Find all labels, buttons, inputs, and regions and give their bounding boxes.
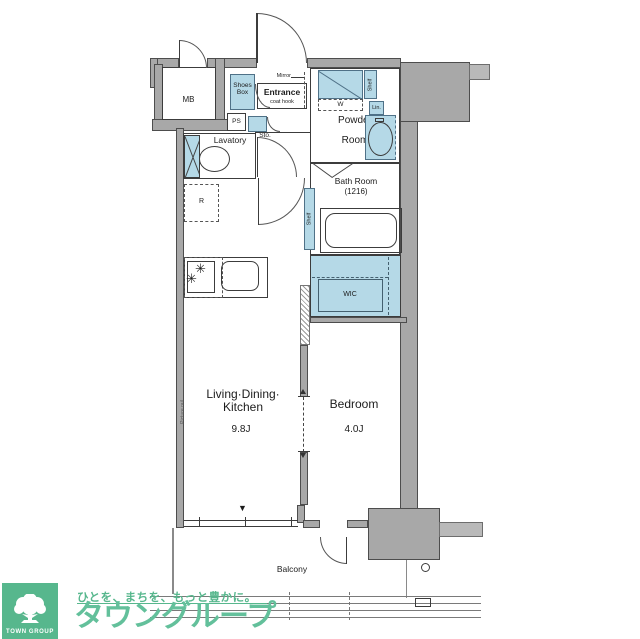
shelf-top-label: Shelf bbox=[368, 78, 374, 91]
washing-machine-pan bbox=[318, 70, 363, 99]
mirror-label: Mirror bbox=[267, 73, 291, 79]
balcony-fixture-box bbox=[415, 598, 431, 607]
mirror-on-wall bbox=[304, 72, 305, 108]
railing-tick bbox=[289, 592, 290, 620]
wic-label: WIC bbox=[312, 291, 388, 299]
lavatory-door-arc bbox=[257, 137, 297, 177]
bedroom-size: 4.0J bbox=[308, 424, 400, 436]
lavatory-label: Lavatory bbox=[200, 136, 260, 146]
window-marker-icon: ▼ bbox=[238, 503, 247, 513]
wall-bottom-right-extension bbox=[439, 522, 483, 537]
bedroom-label: Bedroom bbox=[308, 398, 400, 412]
logo-brand-jp: タウングループ bbox=[74, 600, 275, 633]
lavatory-door-leaf bbox=[257, 137, 258, 177]
ps-label: PS bbox=[227, 118, 246, 125]
hall-ldk-door-leaf bbox=[258, 178, 259, 225]
shoes-box-label-2: Box bbox=[230, 89, 255, 96]
shelf-mid: Shelf bbox=[304, 188, 315, 250]
wall-hatched-strip bbox=[300, 285, 310, 345]
sliding-door-track bbox=[303, 397, 304, 452]
picture-rail: Picture rail bbox=[177, 388, 189, 436]
shelf-mid-label: Shelf bbox=[307, 213, 313, 226]
mirror-leader-line bbox=[291, 77, 304, 78]
storage-box bbox=[248, 116, 267, 132]
balcony-drain bbox=[421, 563, 430, 572]
bedroom-balcony-door-leaf bbox=[346, 537, 347, 564]
ldk-size: 9.8J bbox=[184, 424, 298, 436]
hall-top-line bbox=[255, 132, 310, 133]
ldk-window-outer bbox=[184, 520, 298, 521]
picture-rail-label: Picture rail bbox=[180, 400, 186, 424]
shelf-top: Shelf bbox=[364, 70, 377, 99]
basin-faucet bbox=[375, 118, 384, 122]
wall-left-main bbox=[176, 128, 184, 528]
wic-hanger-pipe bbox=[388, 257, 389, 315]
pillar-drop-line bbox=[406, 560, 407, 598]
balcony-divider-left bbox=[172, 528, 174, 594]
sliding-door-end-tick-bottom bbox=[298, 451, 310, 452]
bathtub bbox=[325, 213, 397, 248]
bedroom-balcony-door-arc bbox=[320, 537, 347, 564]
kitchen-sink bbox=[221, 261, 259, 291]
balcony-label: Balcony bbox=[250, 565, 334, 575]
bath-room-label: Bath Room bbox=[312, 177, 400, 187]
wall-top-right-extension bbox=[469, 64, 490, 80]
wall-wic-bottom bbox=[310, 317, 407, 323]
bath-room-size: (1216) bbox=[312, 187, 400, 196]
pillar-bottom-right bbox=[368, 508, 440, 560]
wic-hanger-pipe bbox=[312, 277, 388, 278]
hall-ldk-door-arc bbox=[258, 178, 305, 225]
sliding-door-arrow-icon bbox=[300, 453, 306, 458]
town-group-text: TOWN GROUP bbox=[6, 629, 54, 635]
wall-bottom-seg-1 bbox=[303, 520, 320, 528]
wall-right-main bbox=[400, 121, 418, 509]
mb-label: MB bbox=[162, 95, 215, 104]
wall-bottom-seg-2 bbox=[347, 520, 368, 528]
toilet-tank bbox=[184, 135, 200, 178]
toilet-bowl bbox=[199, 146, 230, 172]
town-group-logo: TOWN GROUP bbox=[2, 583, 58, 639]
linen-label: Lin. bbox=[369, 105, 384, 111]
washing-machine-label: W bbox=[318, 101, 363, 108]
mb-room bbox=[162, 67, 216, 120]
stove-burner-icon: ✳ bbox=[186, 272, 197, 287]
sliding-door-arrow-icon bbox=[300, 389, 306, 394]
entrance-door-leaf bbox=[256, 13, 258, 63]
ldk-label-2: Kitchen bbox=[186, 401, 300, 415]
railing-tick bbox=[349, 592, 350, 620]
wall-top-right-segment bbox=[307, 58, 401, 68]
mb-door-arc bbox=[179, 40, 207, 68]
window-mullion bbox=[291, 517, 292, 527]
wash-basin-bowl bbox=[368, 122, 393, 156]
ldk-window-inner bbox=[184, 526, 298, 527]
wall-mb-bottom bbox=[152, 119, 228, 131]
storage-door-arc bbox=[267, 117, 280, 132]
pillar-top-right bbox=[400, 62, 470, 122]
window-mullion bbox=[199, 517, 200, 527]
town-group-tree-icon bbox=[11, 594, 49, 628]
window-mullion bbox=[245, 517, 246, 527]
mb-door-leaf bbox=[179, 40, 180, 68]
entrance-door-arc bbox=[257, 13, 307, 63]
refrigerator-label: R bbox=[184, 198, 219, 206]
floor-plan-page: MB PS Shoes Box Entrance coat hook Mirro… bbox=[0, 0, 640, 639]
partition-lower bbox=[300, 452, 308, 505]
